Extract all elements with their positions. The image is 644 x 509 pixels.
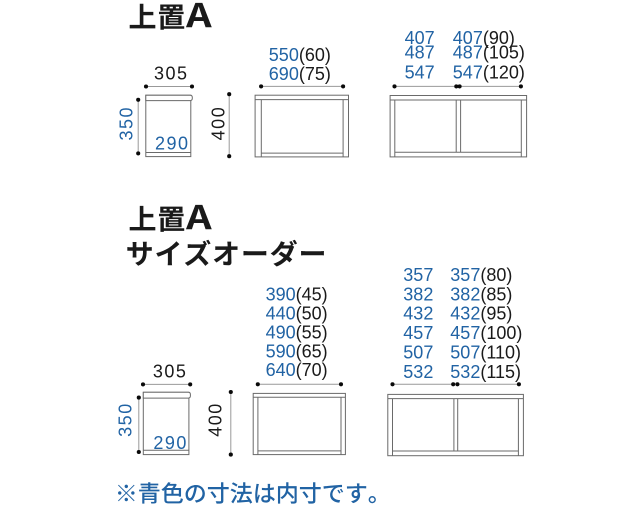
svg-text:440(50): 440(50) [266,303,328,323]
svg-text:432: 432 [403,304,433,324]
svg-text:350: 350 [116,402,136,437]
svg-text:390(45): 390(45) [266,285,328,305]
svg-text:547(120): 547(120) [453,63,525,83]
svg-text:487(105): 487(105) [453,43,525,63]
svg-text:305: 305 [153,362,188,382]
svg-text:400: 400 [205,402,225,437]
svg-text:400: 400 [209,106,229,141]
svg-text:357: 357 [403,265,433,285]
svg-text:590(65): 590(65) [266,341,328,361]
svg-text:690(75): 690(75) [269,64,331,84]
svg-text:487: 487 [405,43,435,63]
svg-text:532(115): 532(115) [450,362,521,382]
svg-text:640(70): 640(70) [266,360,328,380]
svg-text:507: 507 [403,342,433,362]
svg-text:382: 382 [403,284,433,304]
svg-text:382(85): 382(85) [450,284,512,304]
svg-text:490(55): 490(55) [266,322,328,342]
svg-text:457(100): 457(100) [450,323,522,343]
svg-text:547: 547 [405,63,435,83]
svg-text:350: 350 [116,106,136,141]
svg-text:532: 532 [403,362,433,382]
svg-text:290: 290 [153,433,188,453]
svg-text:550(60): 550(60) [269,45,331,65]
svg-text:305: 305 [154,64,189,84]
svg-text:507(110): 507(110) [450,342,521,362]
svg-text:457: 457 [403,323,433,343]
svg-text:357(80): 357(80) [450,265,512,285]
svg-text:290: 290 [155,134,190,154]
svg-text:432(95): 432(95) [450,304,512,324]
